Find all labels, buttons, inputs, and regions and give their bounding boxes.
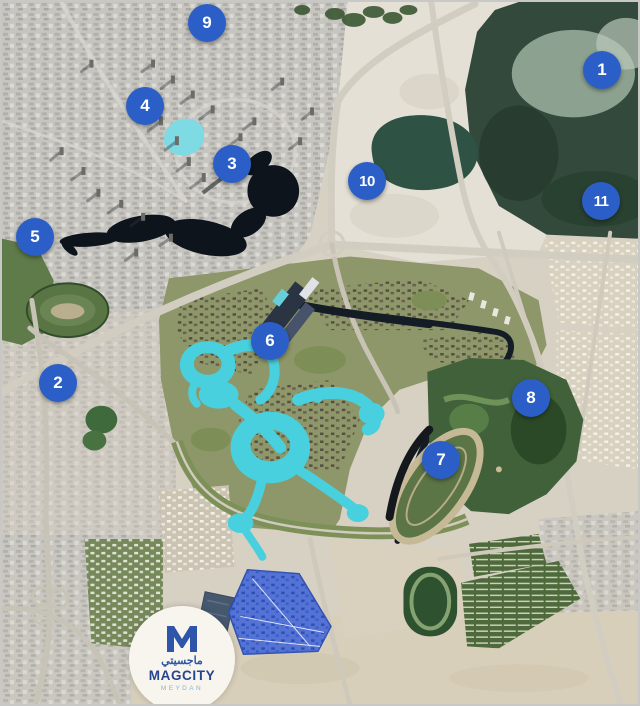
logo-arabic-name: ماجسيتي: [161, 656, 203, 668]
magcity-location-map: 1234567891011 ماجسيتي MAGCITY MEYDAN: [0, 0, 640, 706]
logo-sub-brand: MEYDAN: [161, 684, 203, 694]
magcity-logo: ماجسيتي MAGCITY MEYDAN: [129, 606, 235, 706]
magcity-m-icon: [164, 624, 200, 654]
training-track: [403, 567, 457, 637]
logo-brand-name: MAGCITY: [149, 668, 215, 684]
satellite-map: [2, 2, 638, 704]
